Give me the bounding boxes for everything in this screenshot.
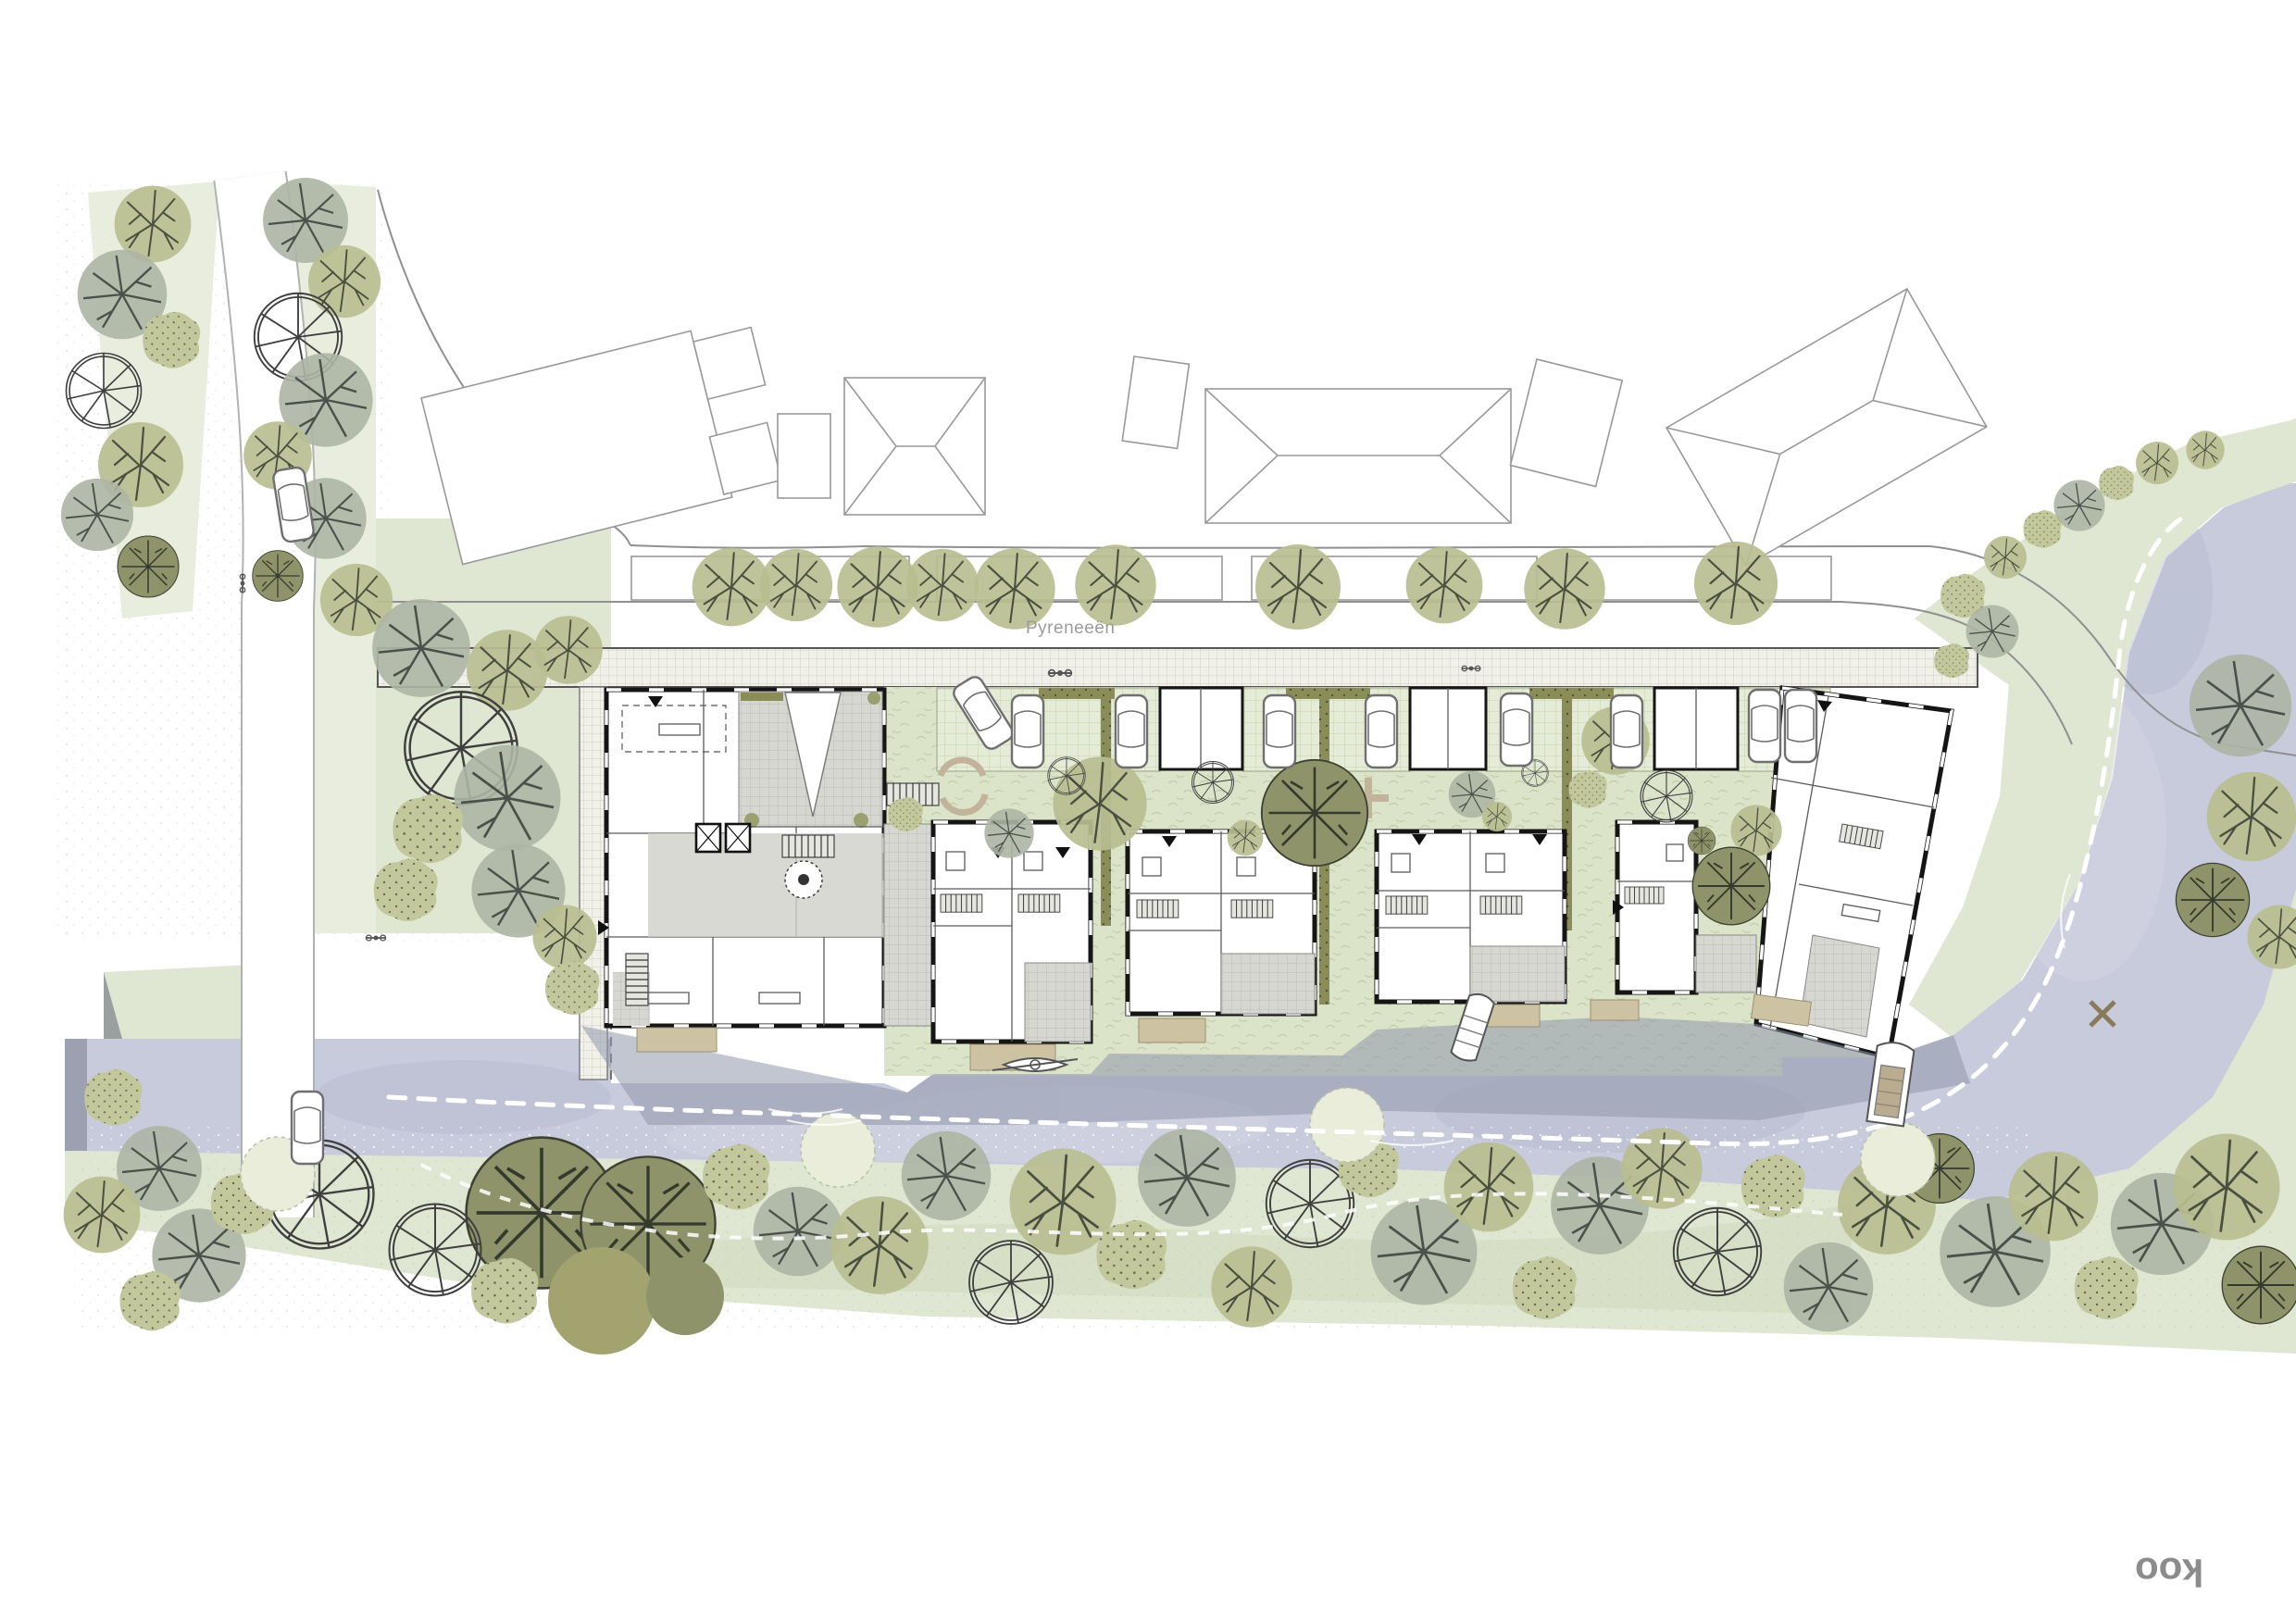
end-block-terrace: [1800, 935, 1879, 1037]
context-building-5-hipped: [1205, 389, 1511, 523]
tree: [2174, 1134, 2280, 1241]
stair: [1386, 896, 1428, 914]
tree: [1053, 756, 1146, 850]
shrub: [393, 794, 463, 863]
ook-logo: ook: [2135, 1546, 2204, 1585]
stair: [782, 835, 834, 857]
tree: [1784, 1242, 1874, 1332]
context-building-2: [778, 414, 830, 498]
street-tree: [906, 549, 979, 621]
tree: [1262, 760, 1367, 866]
stair: [1137, 900, 1179, 918]
parked-car: [1116, 695, 1147, 768]
street-name-label: Pyreneeën: [1026, 618, 1115, 639]
shrub: [888, 797, 923, 831]
deck: [637, 1028, 717, 1052]
shrub: [84, 1069, 142, 1126]
tree: [2186, 431, 2224, 468]
alley-terrace: [884, 824, 933, 1026]
stair: [1480, 896, 1522, 914]
site-plan-drawing: [0, 0, 2296, 1623]
stair: [941, 894, 982, 912]
tree-canopy: [646, 1257, 724, 1335]
tree: [118, 536, 179, 597]
planter: [867, 692, 880, 705]
site-plan-canvas: Pyreneeën ook: [0, 0, 2296, 1623]
shrub: [703, 1144, 769, 1210]
stair: [1625, 887, 1664, 904]
shrub: [1569, 770, 1607, 808]
tree: [1688, 827, 1716, 855]
tree: [372, 599, 470, 697]
quay-wall-left: [65, 1039, 87, 1151]
tree: [2190, 655, 2291, 756]
townhouse-single: [1617, 822, 1696, 993]
street-tree: [837, 546, 917, 627]
parked-car: [1749, 690, 1780, 762]
shrub: [120, 1271, 181, 1330]
tree: [1984, 536, 2027, 579]
sidewalk: [378, 648, 1978, 687]
tree-canopy: [548, 1247, 655, 1355]
tree: [2136, 442, 2178, 484]
tree: [64, 1177, 141, 1254]
tree: [2009, 1152, 2099, 1242]
stair: [1231, 900, 1273, 918]
tree: [253, 551, 304, 602]
tree: [308, 245, 381, 318]
logo-k-rotated: k: [2182, 1553, 2203, 1592]
tree: [1482, 802, 1512, 831]
shrub: [2024, 510, 2062, 548]
shrub: [545, 962, 600, 1015]
tree: [2222, 1246, 2296, 1324]
shrub: [1513, 1256, 1577, 1319]
terrace: [1470, 946, 1565, 1002]
stair: [626, 954, 648, 1005]
street-tree: [760, 549, 832, 621]
context-building-3-hipped: [844, 378, 985, 515]
deck: [1486, 1005, 1540, 1027]
car-on-road: [292, 1092, 323, 1164]
street-tree: [693, 548, 771, 627]
parked-car: [1611, 695, 1642, 768]
tree: [1692, 847, 1770, 925]
gallery-deck: [648, 833, 884, 937]
context-building-4: [1122, 356, 1189, 448]
tree: [534, 616, 603, 684]
logo-oo: oo: [2135, 1543, 2182, 1587]
street-tree: [1406, 547, 1483, 624]
shrub: [374, 858, 438, 921]
tree: [754, 1187, 843, 1277]
tree: [2053, 480, 2104, 531]
planter: [854, 813, 868, 828]
shrub: [471, 1258, 538, 1324]
stair: [1018, 894, 1060, 912]
tree: [984, 808, 1033, 857]
parked-car: [1785, 690, 1816, 762]
street-tree: [1694, 542, 1778, 625]
street-tree: [974, 548, 1054, 629]
tree: [455, 745, 561, 852]
shrub: [143, 312, 200, 368]
spiral-stair: [785, 861, 822, 898]
tree-outline: [1310, 1088, 1384, 1162]
parked-car: [1501, 693, 1532, 766]
west-sidewalk-strip: [580, 687, 607, 1080]
courtyard-planting: [741, 693, 783, 701]
terrace: [1025, 963, 1091, 1042]
shrub: [1934, 643, 1969, 678]
parked-car: [1366, 695, 1397, 768]
tree: [533, 905, 597, 969]
parked-car: [1012, 695, 1043, 768]
west-bank-north: [104, 965, 252, 1039]
tree: [61, 479, 133, 551]
tree: [2176, 863, 2249, 936]
shrub: [2075, 1256, 2139, 1319]
tree: [2207, 772, 2296, 862]
tree: [902, 1131, 992, 1221]
street-tree: [1255, 544, 1341, 630]
tree: [1211, 1246, 1291, 1327]
street-tree: [1075, 544, 1155, 625]
apartment-block: [606, 690, 884, 1026]
terrace: [1696, 935, 1756, 993]
street-tree: [1524, 548, 1604, 629]
terrace: [1221, 954, 1315, 1014]
deck: [1591, 1000, 1639, 1020]
tree-outline: [1861, 1122, 1935, 1196]
tree: [1965, 605, 2018, 657]
parked-car: [1264, 695, 1295, 768]
tree: [1138, 1129, 1236, 1227]
tree: [830, 1196, 929, 1294]
shrub: [2099, 466, 2134, 500]
tree: [1444, 1142, 1534, 1232]
shrub: [1096, 1220, 1167, 1289]
tree: [1228, 820, 1264, 856]
deck: [1139, 1018, 1205, 1042]
